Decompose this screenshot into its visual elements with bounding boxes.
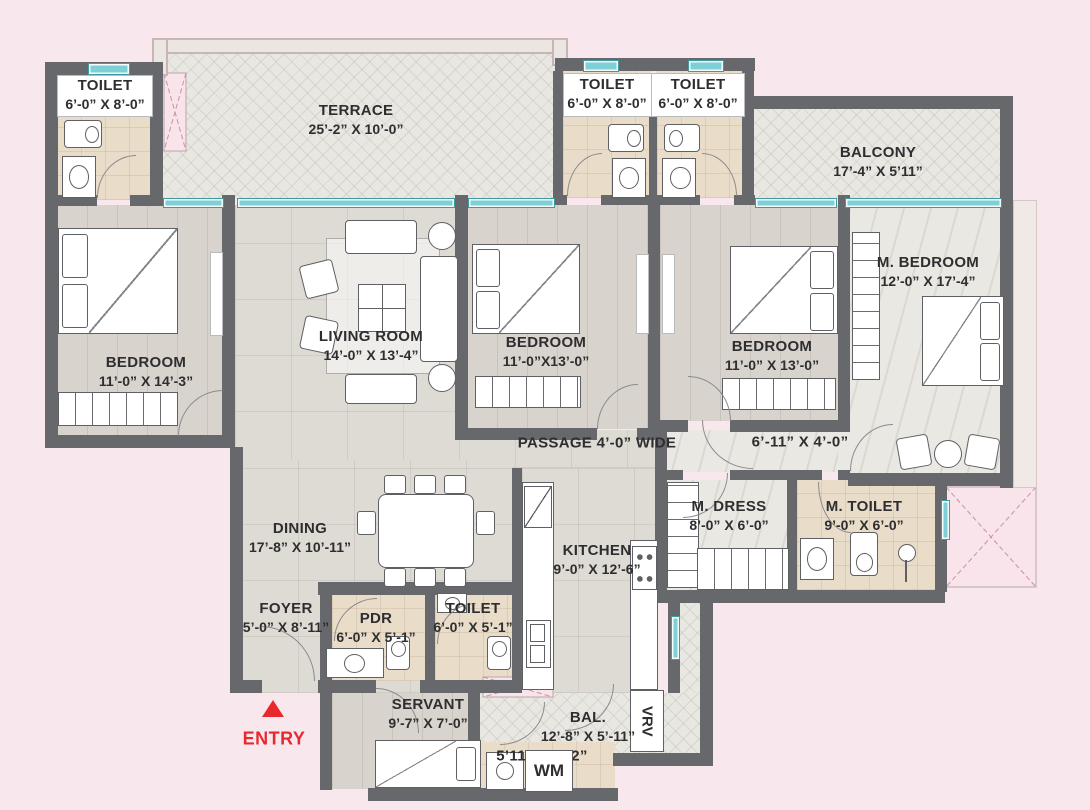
room-name: TOILET: [446, 600, 501, 619]
room-dims: 9’-0” X 12’-6”: [553, 561, 640, 579]
room-name: M. DRESS: [692, 498, 767, 517]
wc-icon: [850, 532, 878, 576]
dining-chair-icon: [414, 475, 436, 494]
bed-icon: [730, 246, 838, 334]
window: [688, 60, 724, 72]
side-table-icon: [428, 364, 456, 392]
washbasin-icon: [612, 158, 646, 198]
room-label-foyer: FOYER5’-0” X 8’-11”: [243, 600, 329, 636]
window: [941, 500, 950, 540]
room-label-terrace: TERRACE25’-2” X 10’-0”: [309, 102, 404, 138]
bed-icon: [472, 244, 580, 334]
dining-chair-icon: [357, 511, 376, 535]
dining-chair-icon: [384, 475, 406, 494]
room-dims: 9’-7” X 7’-0”: [388, 715, 467, 733]
window: [671, 616, 680, 660]
pillow-icon: [476, 291, 500, 329]
washbasin-icon: [62, 156, 96, 198]
window: [468, 198, 555, 208]
wall-segment: [655, 590, 945, 603]
bed-icon: [922, 296, 1004, 386]
bed-fold-line: [923, 297, 981, 385]
basin-bowl: [807, 547, 828, 571]
kitchen-sink-icon: [526, 620, 551, 668]
wardrobe-icon: [852, 232, 880, 380]
wardrobe-icon: [58, 392, 178, 426]
bed-icon: [375, 740, 481, 788]
room-dims: 14’-0” X 13’-4”: [324, 347, 419, 365]
side-table-icon: [934, 440, 962, 468]
wall-segment: [45, 62, 58, 448]
room-label-bedroom2: BEDROOM11’-0”X13’-0”: [503, 334, 589, 370]
wall-segment: [468, 692, 480, 744]
pillow-icon: [476, 249, 500, 287]
room-dims: 25’-2” X 10’-0”: [309, 121, 404, 139]
room-dims: 6’-0” X 8’-0”: [567, 95, 646, 113]
room-name: TOILET: [580, 76, 635, 95]
room-name: PDR: [360, 610, 393, 629]
room-label-pdr: PDR6’-0” X 5’-1”: [336, 610, 415, 646]
vrv-label: VRV: [639, 706, 656, 737]
room-label-master-bedroom: M. BEDROOM12’-0” X 17’-4”: [877, 254, 979, 290]
wall-segment: [734, 195, 755, 205]
sofa-icon: [420, 256, 458, 362]
dining-chair-icon: [414, 568, 436, 587]
wall-segment: [512, 468, 522, 693]
tv-panel: [210, 252, 223, 336]
wall-segment: [648, 195, 660, 430]
dining-chair-icon: [444, 568, 466, 587]
room-label-kitchen: KITCHEN9’-0” X 12’-6”: [553, 542, 640, 578]
room-label-living: LIVING ROOM14’-0” X 13’-4”: [319, 328, 423, 364]
room-label-dining: DINING17’-8” X 10’-11”: [249, 520, 351, 556]
window: [237, 198, 455, 208]
wall-segment: [700, 602, 713, 766]
wardrobe-icon: [475, 376, 581, 408]
room-dims: 6’-0” X 5’-1”: [336, 629, 415, 647]
room-label-toilet-bottom: TOILET6’-0” X 5’-1”: [433, 600, 512, 636]
room-name: DINING: [273, 520, 327, 539]
side-table-icon: [428, 222, 456, 250]
sofa-icon: [345, 374, 417, 404]
window: [583, 60, 619, 72]
room-dims: 8’-0” X 6’-0”: [689, 517, 768, 535]
room-dims: 11’-0” X 13’-0”: [725, 357, 819, 375]
bed-fold-line: [499, 245, 579, 333]
washbasin-icon: [800, 538, 834, 580]
tv-panel: [662, 254, 675, 334]
room-name: KITCHEN: [563, 542, 632, 561]
wardrobe-icon: [722, 378, 836, 410]
room-dims: 12’-0” X 17’-4”: [881, 273, 976, 291]
wall-segment: [222, 195, 235, 447]
bed-fold-line: [89, 229, 177, 333]
window: [88, 63, 130, 75]
room-dims: 6’-0” X 5’-1”: [433, 619, 512, 637]
armchair-icon: [895, 433, 932, 470]
vanity-counter: [326, 648, 384, 678]
pillow-icon: [62, 284, 88, 328]
kitchen-cabinet-icon: [524, 486, 552, 528]
room-name: FOYER: [259, 600, 312, 619]
entry-label: ENTRY: [243, 729, 306, 750]
pillow-icon: [62, 234, 88, 278]
room-name: PASSAGE 4’-0” WIDE: [518, 435, 676, 454]
facade-niche: [1013, 200, 1037, 488]
wc-bowl: [492, 641, 507, 657]
room-label-toilet-mid-1: TOILET6’-0” X 8’-0”: [567, 76, 646, 112]
wc-icon: [664, 124, 700, 152]
room-dims: 6’-11” X 4’-0”: [752, 434, 849, 453]
room-name: M. TOILET: [826, 498, 903, 517]
room-label-bal: BAL.12’-8” X 5’-11”: [541, 709, 635, 745]
pillow-icon: [456, 747, 476, 781]
wall-segment: [320, 692, 332, 790]
wall-segment: [613, 753, 713, 766]
window: [163, 198, 224, 208]
sofa-icon: [345, 220, 417, 254]
wall-segment: [45, 435, 235, 448]
washing-machine-icon: WM: [525, 750, 573, 792]
window: [755, 198, 837, 208]
dining-chair-icon: [476, 511, 495, 535]
room-label-passage: PASSAGE 4’-0” WIDE: [518, 435, 676, 454]
tv-panel: [636, 254, 649, 334]
wall-segment: [754, 96, 1012, 109]
coffee-table-icon: [358, 284, 406, 332]
wc-bowl: [627, 130, 641, 148]
wall-segment: [553, 71, 563, 197]
dining-chair-icon: [384, 568, 406, 587]
floor-plan-canvas: WM VRV TOILET6’-0” X 8’-0” TERRACE25’-2”…: [0, 0, 1090, 810]
sink-bowl: [530, 645, 545, 663]
basin-bowl: [344, 654, 365, 673]
wc-icon: [487, 636, 511, 670]
bed-fold-line: [376, 741, 456, 787]
room-name: BEDROOM: [732, 338, 812, 357]
window: [845, 198, 1002, 208]
pillow-icon: [810, 293, 834, 331]
room-label-m-toilet: M. TOILET9’-0” X 6’-0”: [824, 498, 903, 534]
washbasin-icon: [662, 158, 696, 198]
basin-bowl: [619, 167, 640, 190]
wall-segment: [230, 680, 262, 693]
room-name: BAL.: [570, 709, 606, 728]
room-label-toilet-top-left: TOILET6’-0” X 8’-0”: [65, 77, 144, 113]
wall-segment: [230, 447, 243, 693]
wall-segment: [420, 680, 512, 693]
room-name: TOILET: [78, 77, 133, 96]
room-label-bedroom3: BEDROOM11’-0” X 13’-0”: [725, 338, 819, 374]
vrv-unit: VRV: [630, 690, 664, 752]
pillow-icon: [980, 343, 1000, 381]
wc-bowl: [669, 130, 683, 148]
room-label-bedroom1: BEDROOM11’-0” X 14’-3”: [99, 354, 193, 390]
room-dims: 9’-0” X 6’-0”: [824, 517, 903, 535]
room-label-balcony: BALCONY17’-4” X 5’11”: [833, 144, 923, 180]
shaft-x-icon: [945, 486, 1037, 588]
room-label-m-dress: M. DRESS8’-0” X 6’-0”: [689, 498, 768, 534]
basin-bowl: [670, 167, 691, 190]
bed-fold-line: [731, 247, 811, 333]
dining-chair-icon: [444, 475, 466, 494]
room-label-lobby: 6’-11” X 4’-0”: [752, 434, 849, 453]
room-name: BEDROOM: [506, 334, 586, 353]
wall-segment: [1000, 96, 1013, 488]
dining-table-icon: [378, 494, 474, 568]
basin-bowl: [69, 165, 90, 189]
room-name: BEDROOM: [106, 354, 186, 373]
room-dims: 17’-4” X 5’11”: [833, 163, 923, 181]
wc-icon: [64, 120, 102, 148]
wall-segment: [655, 470, 683, 480]
armchair-icon: [963, 433, 1000, 470]
room-name: BALCONY: [840, 144, 916, 163]
sink-bowl: [530, 624, 545, 642]
room-dims: 6’-0” X 8’-0”: [65, 96, 144, 114]
room-dims: 6’-0” X 8’-0”: [658, 95, 737, 113]
wall-segment: [838, 195, 850, 422]
parapet-wall: [152, 38, 568, 54]
shower-icon: [898, 544, 916, 562]
room-label-servant: SERVANT9’-7” X 7’-0”: [388, 696, 467, 732]
bed-icon: [58, 228, 178, 334]
wc-bowl: [85, 126, 99, 144]
room-name: LIVING ROOM: [319, 328, 423, 347]
pillow-icon: [980, 302, 1000, 340]
wc-icon: [608, 124, 644, 152]
room-dims: 17’-8” X 10’-11”: [249, 539, 351, 557]
wall-segment: [553, 195, 567, 205]
room-name: SERVANT: [392, 696, 464, 715]
room-dims: 5’-0” X 8’-11”: [243, 619, 329, 637]
dress-rack-icon: [697, 548, 789, 590]
shower-stem: [905, 560, 907, 582]
room-name: TERRACE: [319, 102, 394, 121]
room-dims: 12’-8” X 5’-11”: [541, 728, 635, 746]
wall-segment: [848, 473, 1012, 486]
room-name: TOILET: [671, 76, 726, 95]
wall-segment: [730, 470, 822, 480]
entry-arrow-icon: [262, 700, 284, 717]
room-dims: 11’-0” X 14’-3”: [99, 373, 193, 391]
pillow-icon: [810, 251, 834, 289]
wc-bowl: [856, 553, 874, 572]
wm-label: WM: [534, 761, 564, 781]
room-dims: 11’-0”X13’-0”: [503, 353, 589, 371]
room-label-toilet-mid-2: TOILET6’-0” X 8’-0”: [658, 76, 737, 112]
room-name: M. BEDROOM: [877, 254, 979, 273]
shaft-x-icon: [163, 72, 187, 152]
